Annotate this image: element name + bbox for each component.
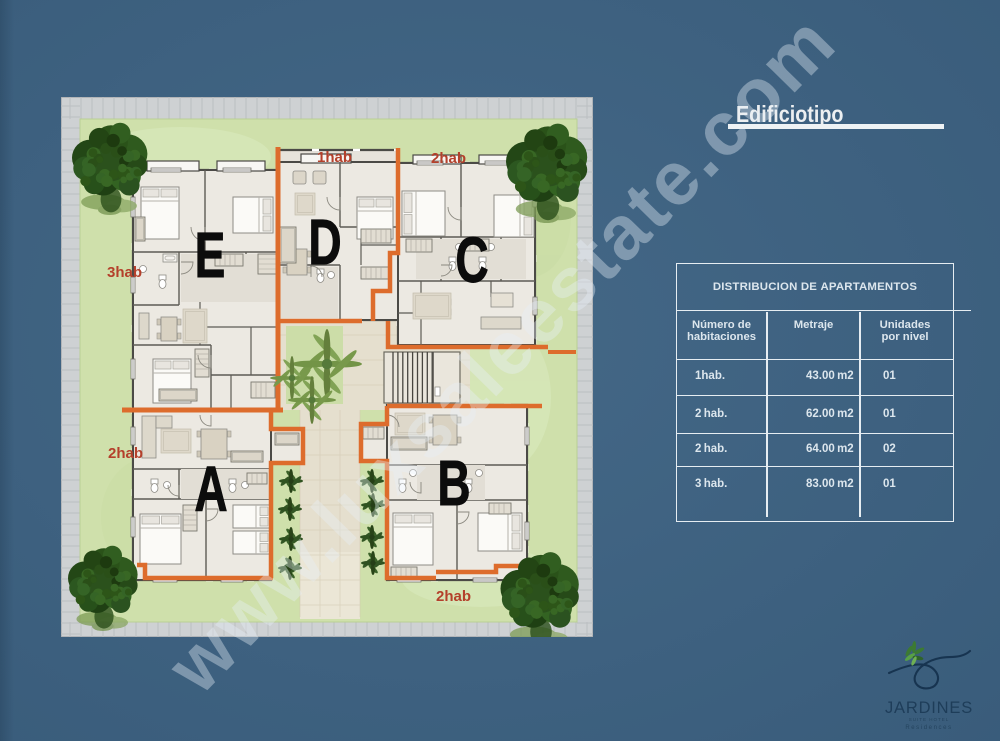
svg-text:JARDINES: JARDINES [885, 699, 973, 717]
svg-text:C: C [455, 225, 488, 296]
svg-text:2hab: 2hab [108, 445, 143, 462]
svg-text:A: A [194, 454, 227, 525]
svg-text:Residences: Residences [905, 725, 952, 731]
svg-text:3hab: 3hab [107, 264, 142, 281]
svg-text:2hab: 2hab [436, 588, 471, 605]
svg-text:1hab: 1hab [317, 149, 352, 166]
svg-text:E: E [195, 220, 226, 291]
svg-text:SUITE HOTEL: SUITE HOTEL [909, 717, 950, 722]
svg-text:2hab: 2hab [431, 150, 466, 167]
svg-text:D: D [308, 207, 341, 278]
